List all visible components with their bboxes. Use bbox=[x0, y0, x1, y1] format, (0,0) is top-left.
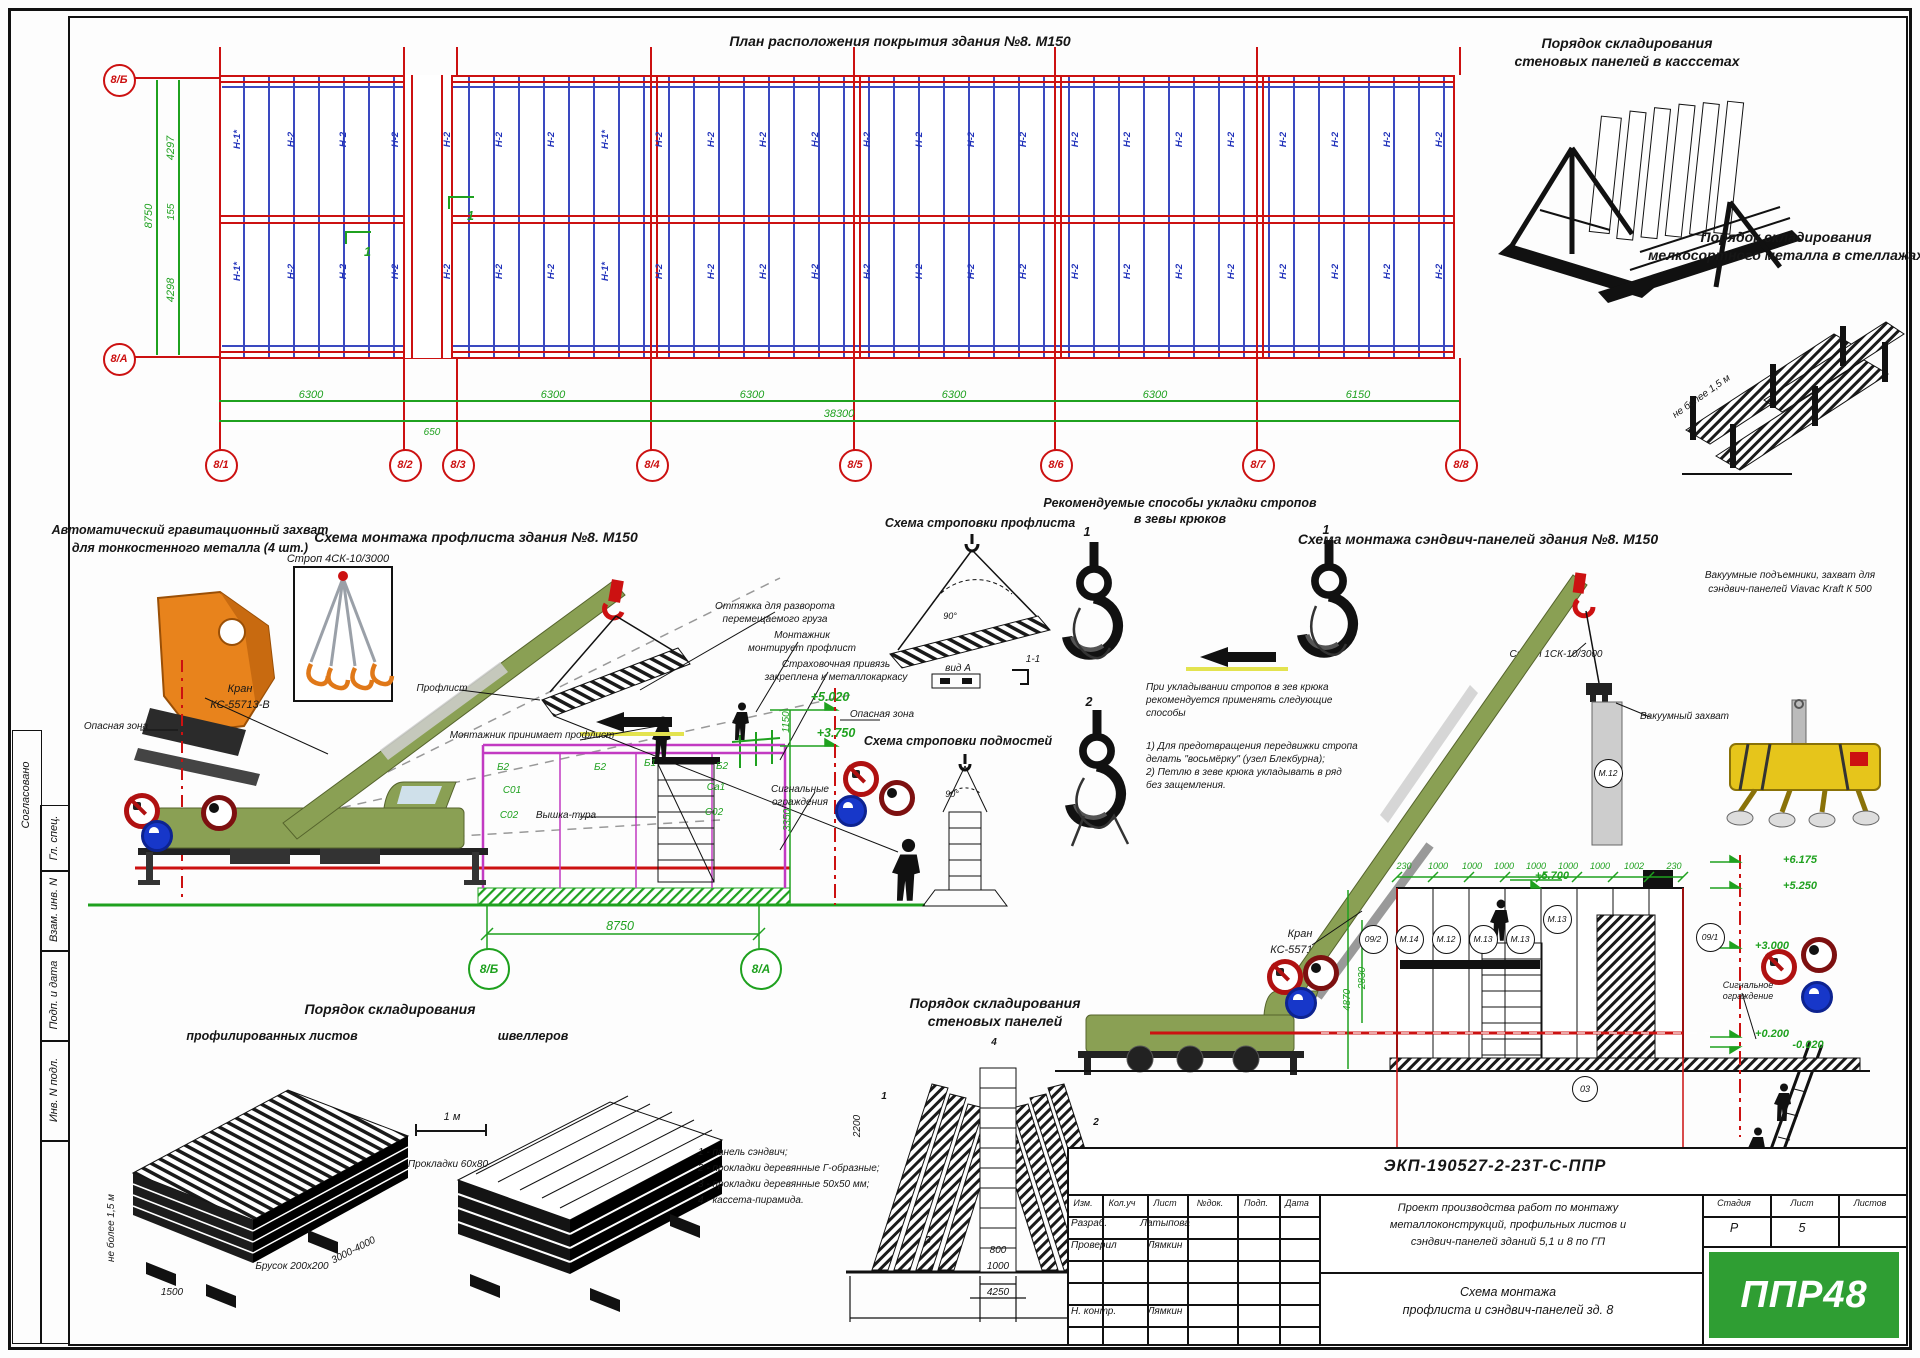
tb-sheetname-1: Схема монтажа bbox=[1460, 1286, 1556, 1299]
dim: 4298 bbox=[166, 278, 178, 302]
dim: 800 bbox=[990, 1246, 1007, 1257]
dim: 4250 bbox=[987, 1288, 1009, 1299]
channel-stack-illustration bbox=[440, 1062, 730, 1317]
crane1-label-2: КС-55713-В bbox=[210, 700, 270, 712]
elevation: +5.250 bbox=[1783, 881, 1817, 893]
dim: 1000 bbox=[987, 1262, 1009, 1273]
dim: 3350 bbox=[783, 809, 794, 831]
panel-mark: М.14 bbox=[1395, 925, 1424, 954]
axis-bubble: 8/7 bbox=[1242, 449, 1275, 482]
logo-ppr48: ППР48 bbox=[1709, 1252, 1899, 1338]
crane1-label-1: Кран bbox=[228, 684, 253, 696]
storage2-title-2: стеновых панелей bbox=[928, 1014, 1063, 1029]
axis-bubble: 8/1 bbox=[205, 449, 238, 482]
no-pass-sign-icon bbox=[879, 780, 915, 816]
frame-mark: С01 bbox=[503, 786, 521, 797]
tb-project-3: сэндвич-панелей зданий 5,1 и 8 по ГП bbox=[1411, 1237, 1605, 1249]
no-entry-sign-icon bbox=[1761, 949, 1797, 985]
rack-title-1: Порядок складирования bbox=[1701, 230, 1872, 245]
proflist-sling-illustration bbox=[880, 532, 1065, 707]
dim: 4297 bbox=[166, 136, 178, 160]
dim: 1002 bbox=[1624, 862, 1644, 871]
drawing-sheet: План расположения покрытия здания №8. М1… bbox=[0, 0, 1920, 1358]
axis-bubble: 8/5 bbox=[839, 449, 872, 482]
dim: 6300 bbox=[1143, 390, 1167, 402]
tb-sheets-h: Листов bbox=[1854, 1199, 1887, 1208]
dim: 2830 bbox=[1358, 967, 1369, 989]
storage2-note: 3 - прокладки деревянные 50х50 мм; bbox=[698, 1180, 869, 1191]
doc-number: ЭКП-190527-2-23Т-С-ППР bbox=[1384, 1158, 1607, 1175]
danger-zone-left: Опасная зона bbox=[84, 722, 148, 733]
no-pass-sign-icon bbox=[1303, 955, 1339, 991]
helmet-sign-icon bbox=[835, 795, 867, 827]
tb-col: Дата bbox=[1285, 1199, 1309, 1208]
storage1-sub1: профилированных листов bbox=[186, 1030, 357, 1043]
tb-sheet-v: 5 bbox=[1799, 1222, 1806, 1235]
axis-bubble: 8/4 bbox=[636, 449, 669, 482]
tb-col: Изм. bbox=[1073, 1199, 1092, 1208]
frame-mark: С02 bbox=[705, 808, 723, 819]
callout-fence-1: Сигнальные bbox=[771, 785, 829, 796]
panel-mark: М.13 bbox=[1506, 925, 1535, 954]
margin-box bbox=[40, 1140, 70, 1344]
dim: 1500 bbox=[161, 1288, 183, 1299]
hooks-title-2: в зевы крюков bbox=[1134, 513, 1226, 526]
elevation: +6.175 bbox=[1783, 855, 1817, 867]
detail-flag: 1 bbox=[467, 210, 474, 223]
no-pass-sign-icon bbox=[201, 795, 237, 831]
frame-mark: Б2 bbox=[716, 762, 728, 773]
callout-proflist: Профлист bbox=[416, 684, 467, 695]
axis-bubble: 8/3 bbox=[442, 449, 475, 482]
danger-zone-right: Опасная зона bbox=[850, 710, 914, 721]
tb-project-1: Проект производства работ по монтажу bbox=[1398, 1203, 1618, 1215]
sheet-stack-illustration bbox=[118, 1048, 423, 1313]
spacer-label: Прокладки 60x80 bbox=[408, 1160, 488, 1171]
hooks-title-1: Рекомендуемые способы укладки стропов bbox=[1043, 497, 1316, 510]
dim: 155 bbox=[167, 204, 178, 221]
angle-mark: 90° bbox=[945, 790, 959, 799]
callout-guy-1: Оттяжка для разворота bbox=[715, 602, 835, 613]
axis-bubble: 8/А bbox=[103, 343, 136, 376]
dim: 1000 bbox=[1494, 862, 1514, 871]
logo-text: ППР48 bbox=[1740, 1274, 1867, 1317]
tb-role: Проверил bbox=[1071, 1241, 1117, 1252]
dim: 4870 bbox=[1343, 989, 1354, 1011]
detail-11: 1-1 bbox=[1026, 655, 1040, 666]
storage1-sub2: швеллеров bbox=[498, 1030, 569, 1043]
height-note: не более 1,5 м bbox=[107, 1194, 118, 1262]
storage1-title: Порядок складирования bbox=[305, 1002, 476, 1017]
frame-mark: Б1 bbox=[644, 759, 656, 770]
dim-8750: 8750 bbox=[606, 920, 634, 933]
dim: 6300 bbox=[740, 390, 764, 402]
dim: 2200 bbox=[853, 1115, 864, 1137]
axis-bubble: 8/8 bbox=[1445, 449, 1478, 482]
block-label: Брусок 200x200 bbox=[255, 1262, 328, 1273]
axis-bubble: 8/А bbox=[740, 948, 782, 990]
elevation: +5.020 bbox=[811, 691, 850, 704]
storage2-note: 4 - кассета-пирамида. bbox=[698, 1196, 804, 1207]
tb-sheet-h: Лист bbox=[1790, 1199, 1813, 1208]
slingB-title: Схема строповки подмостей bbox=[864, 735, 1052, 748]
dim: 1150 bbox=[782, 711, 793, 733]
panel-mark: 09/2 bbox=[1359, 925, 1388, 954]
margin-label: Инв. N подл. bbox=[48, 1058, 60, 1122]
frame-mark: С02 bbox=[500, 811, 518, 822]
elevation: -0.020 bbox=[1792, 1040, 1823, 1052]
storage2-note: 1 - панель сэндвич; bbox=[698, 1148, 788, 1159]
dim: 230 bbox=[1396, 862, 1411, 871]
tb-name: Лямкин bbox=[1148, 1307, 1183, 1318]
cassette-title-2: стеновых панелей в касссетах bbox=[1515, 54, 1740, 69]
tb-role: Разраб. bbox=[1071, 1219, 1107, 1230]
margin-label: Гл. спец. bbox=[48, 816, 60, 861]
hanging-panel-mark: М.12 bbox=[1594, 759, 1623, 788]
no-entry-sign-icon bbox=[843, 761, 879, 797]
rack-title-2: мелкосортного металла в стеллажах bbox=[1648, 248, 1920, 263]
callout-guy-2: перемещаемого груза bbox=[723, 615, 828, 626]
fence-label-2: ограждение bbox=[1723, 992, 1774, 1001]
callout-fitter-2: монтирует профлист bbox=[748, 644, 856, 655]
tb-stage-h: Стадия bbox=[1717, 1199, 1751, 1208]
proflist-assembly-scheme bbox=[80, 520, 940, 980]
dim: 1000 bbox=[1590, 862, 1610, 871]
slingA-title: Схема строповки профлиста bbox=[885, 517, 1075, 530]
callout-harness-1: Страховочная привязь bbox=[782, 660, 890, 671]
frame-mark: Са1 bbox=[707, 783, 725, 794]
axis-bubble: 8/6 bbox=[1040, 449, 1073, 482]
dim: 1000 bbox=[1462, 862, 1482, 871]
elevation: +0.200 bbox=[1755, 1029, 1789, 1041]
dim: 6300 bbox=[541, 390, 565, 402]
callout-num: 3 bbox=[925, 1236, 931, 1247]
dim: 6300 bbox=[942, 390, 966, 402]
plan-panel-labels-bottom: Н-1*Н-2Н-2Н-2Н-2Н-2Н-2Н-1*Н-2Н-2Н-2Н-2Н-… bbox=[228, 238, 1448, 304]
helmet-sign-icon bbox=[141, 820, 173, 852]
plan-title: План расположения покрытия здания №8. М1… bbox=[729, 34, 1070, 49]
frame-mark: Б2 bbox=[594, 763, 606, 774]
callout-num: 4 bbox=[991, 1038, 997, 1049]
dim-1m: 1 м bbox=[444, 1112, 461, 1124]
dim: 230 bbox=[1666, 862, 1681, 871]
tb-role: Н. контр. bbox=[1071, 1307, 1116, 1318]
tb-col: Лист bbox=[1153, 1199, 1176, 1208]
tb-name: Лямкин bbox=[1148, 1241, 1183, 1252]
tb-col: Кол.уч bbox=[1109, 1199, 1136, 1208]
mark-03: 03 bbox=[1572, 1076, 1598, 1102]
callout-num: 1 bbox=[881, 1092, 887, 1103]
fence-label-1: Сигнальное bbox=[1723, 981, 1774, 990]
cassette-title-1: Порядок складирования bbox=[1542, 36, 1713, 51]
storage2-title-1: Порядок складирования bbox=[910, 996, 1081, 1011]
axis-bubble: 8/Б bbox=[103, 64, 136, 97]
tb-name: Латыпова bbox=[1140, 1219, 1190, 1230]
scaffold-sling-illustration bbox=[905, 750, 1025, 910]
panel-mark: 09/1 bbox=[1696, 923, 1725, 952]
dim: 1000 bbox=[1428, 862, 1448, 871]
tb-project-2: металлоконструкций, профильных листов и bbox=[1390, 1220, 1626, 1232]
callout-fence-2: ограждения bbox=[772, 798, 828, 809]
dim: 6300 bbox=[299, 390, 323, 402]
panel-mark: М.12 bbox=[1432, 925, 1461, 954]
detail-vida: вид А bbox=[945, 664, 971, 675]
frame-mark: Б2 bbox=[497, 763, 509, 774]
margin-label: Согласовано bbox=[20, 761, 32, 828]
storage2-note: 2 - прокладки деревянные Г-образные; bbox=[698, 1164, 880, 1175]
margin-label: Взам. инв. N bbox=[48, 878, 60, 942]
callout-num: 2 bbox=[1093, 1118, 1099, 1129]
panel-mark: М.13 bbox=[1469, 925, 1498, 954]
plan-panel-labels-top: Н-1*Н-2Н-2Н-2Н-2Н-2Н-2Н-1*Н-2Н-2Н-2Н-2Н-… bbox=[228, 106, 1448, 172]
panel-mark: М.13 bbox=[1543, 905, 1572, 934]
vacuum-lifter-illustration bbox=[1700, 692, 1905, 862]
dim: 8750 bbox=[144, 204, 156, 228]
angle-mark: 90° bbox=[943, 612, 957, 621]
axis-bubble: 8/Б bbox=[468, 948, 510, 990]
callout-tower: Вышка-тура bbox=[536, 811, 596, 822]
callout-fitter-1: Монтажник bbox=[774, 631, 830, 642]
elevation: +3.750 bbox=[817, 727, 856, 740]
elevation: +5.700 bbox=[1535, 871, 1569, 883]
dim: 6150 bbox=[1346, 390, 1370, 402]
tb-col: Подп. bbox=[1244, 1199, 1268, 1208]
helmet-sign-icon bbox=[1801, 981, 1833, 1013]
dim-gap: 650 bbox=[424, 428, 441, 439]
callout-receiver: Монтажник принимает профлист bbox=[450, 731, 615, 742]
dim-total: 38300 bbox=[824, 409, 855, 421]
helmet-sign-icon bbox=[1285, 987, 1317, 1019]
tb-stage-v: Р bbox=[1730, 1222, 1738, 1235]
tb-sheetname-2: профлиста и сэндвич-панелей зд. 8 bbox=[1403, 1304, 1614, 1317]
no-pass-sign-icon bbox=[1801, 937, 1837, 973]
axis-bubble: 8/2 bbox=[389, 449, 422, 482]
tb-col: №док. bbox=[1197, 1199, 1223, 1208]
margin-label: Подп. и дата bbox=[48, 961, 60, 1030]
